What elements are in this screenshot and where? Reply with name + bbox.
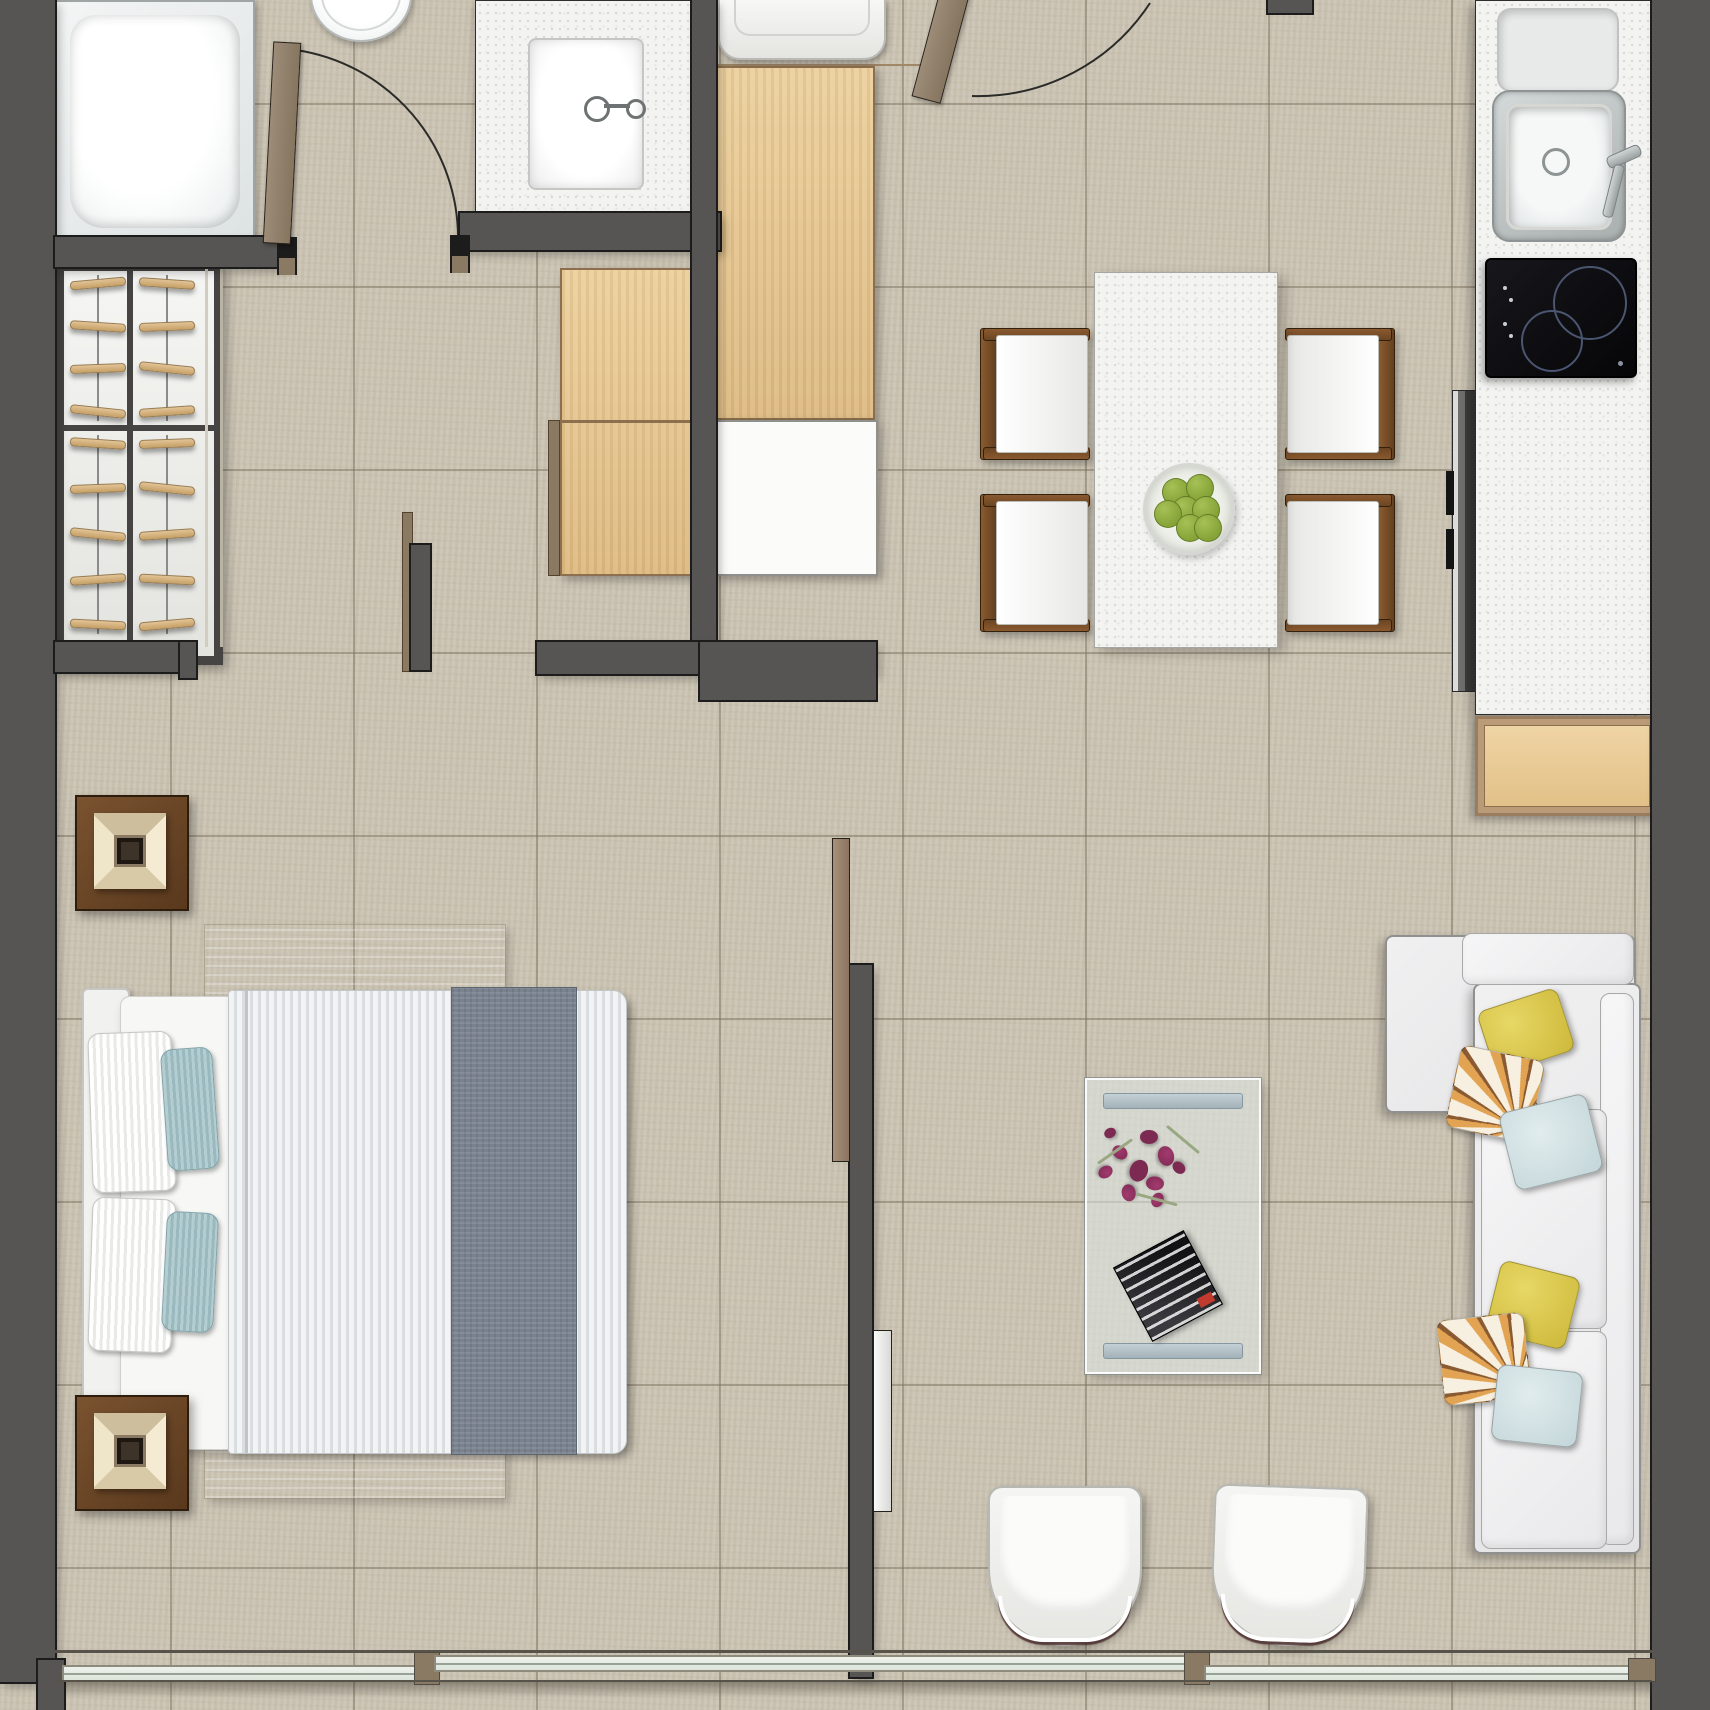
entry-cabinet[interactable] [718, 0, 886, 60]
wall-bathroom-south [55, 237, 285, 267]
vanity-faucet-head [626, 99, 646, 119]
window-frame-line [55, 1680, 1652, 1682]
wall-closet-south [55, 642, 187, 672]
flower-decor [1092, 1120, 1212, 1235]
kitchen-sink[interactable] [1492, 90, 1626, 242]
sliding-glass-panel[interactable] [873, 1330, 892, 1512]
flower-petal [1096, 1163, 1115, 1181]
bed-accent-pillow [161, 1211, 219, 1334]
wall-under-vanity [460, 213, 720, 250]
flower-petal [1145, 1175, 1164, 1191]
wall-left [0, 0, 55, 1682]
wall-bedroom-partition [850, 965, 872, 1677]
flower-petal [1102, 1126, 1117, 1140]
vanity-faucet-handle [584, 96, 610, 122]
window-frame-line [55, 1650, 1652, 1653]
wall-doorway-pier [411, 545, 430, 670]
sofa-pillow-blue [1490, 1364, 1583, 1449]
wall-stub-top [1268, 0, 1312, 13]
fruit-bowl [1143, 463, 1235, 555]
cooktop[interactable] [1485, 258, 1637, 378]
sink-drain [1542, 148, 1570, 176]
entry-door-arc [972, 3, 1150, 96]
window-end-block [1628, 1658, 1656, 1682]
bed-accent-pillow [160, 1046, 220, 1171]
flower-petal [1120, 1183, 1137, 1202]
wall-mid-horizontal-thick [700, 642, 876, 700]
entry-cabinet-detail [734, 0, 870, 36]
dining-table[interactable] [1094, 272, 1278, 648]
bathroom-door-arc [296, 50, 458, 240]
cooktop-burner [1521, 310, 1583, 372]
sofa-back-cushion [1462, 933, 1634, 985]
window-sill-shadow [55, 1682, 1652, 1698]
wall-closet-corner [180, 642, 196, 678]
floor-plan [0, 0, 1710, 1710]
wall-corner-bottom-left [38, 1660, 64, 1710]
sliding-door-panel[interactable] [832, 838, 850, 1162]
apple [1194, 514, 1222, 542]
flower-petal [1140, 1130, 1158, 1144]
door-jamb [450, 235, 470, 273]
wall-right [1652, 0, 1710, 1710]
sink-drainboard [1497, 8, 1619, 92]
wall-mid-vertical [692, 0, 716, 648]
sliding-window-pane[interactable] [434, 1655, 1192, 1672]
